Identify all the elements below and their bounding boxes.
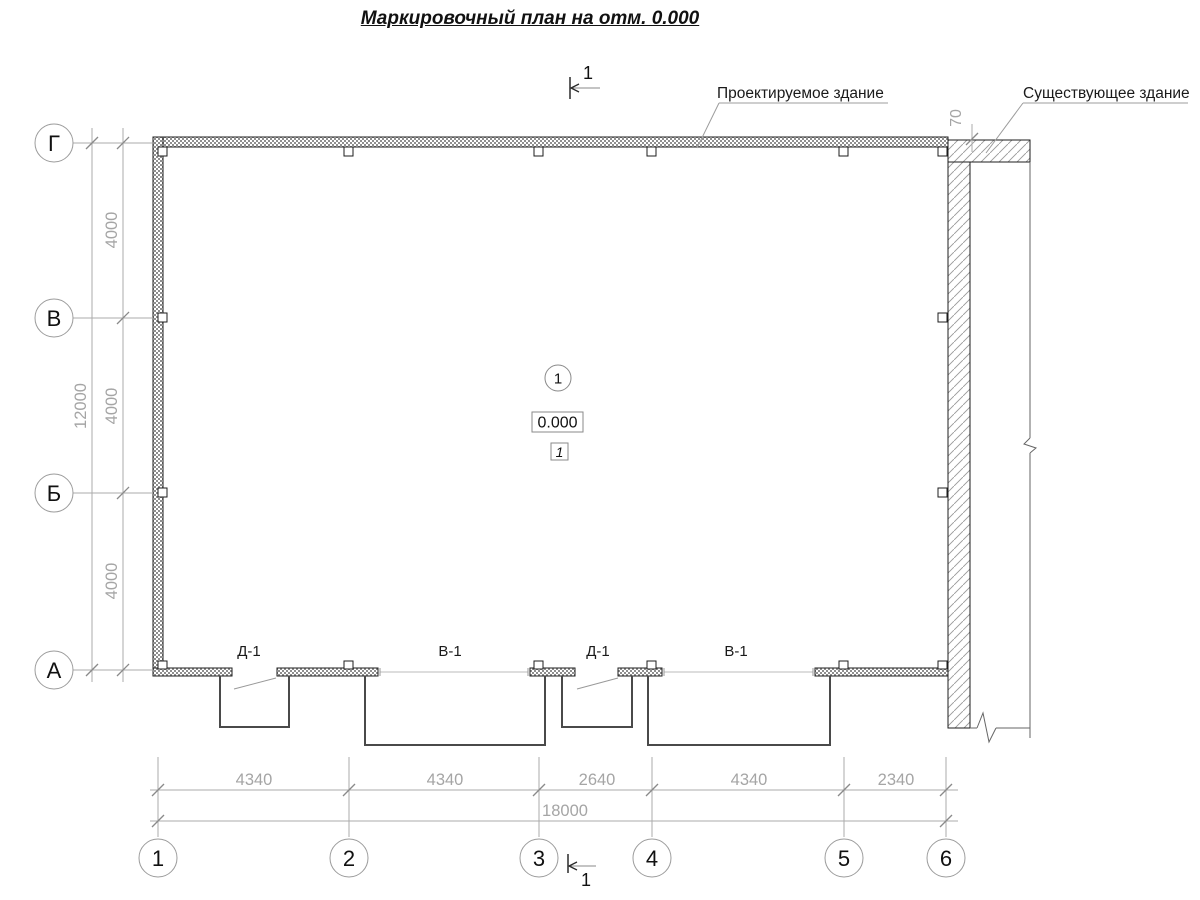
- wall: [153, 137, 163, 676]
- door-swing-line: [234, 678, 276, 689]
- wall: [277, 668, 378, 676]
- elevation-value: 0.000: [537, 415, 577, 432]
- section-mark-label-bottom: 1: [581, 870, 591, 891]
- projected-building-label: Проектируемое здание: [717, 85, 884, 103]
- pilaster: [158, 313, 167, 322]
- pilaster: [938, 661, 947, 669]
- door-mark-d1: Д-1: [227, 643, 271, 660]
- pilaster: [839, 661, 848, 669]
- window-mark-v1: В-1: [428, 643, 472, 660]
- existing-building-label: Существующее здание: [1023, 85, 1190, 103]
- pilaster: [938, 313, 947, 322]
- drawing-canvas: ГВБА123456434043402640434023401800040004…: [0, 0, 1200, 900]
- axis-number: 5: [838, 846, 850, 871]
- existing-building-wall: [948, 140, 1030, 162]
- dim-text: 2640: [579, 771, 616, 789]
- pilaster: [158, 661, 167, 669]
- dim-text: 4340: [731, 771, 768, 789]
- pilaster: [647, 147, 656, 156]
- axis-number: 4: [646, 846, 658, 871]
- room-number: 1: [554, 371, 562, 388]
- pilaster: [158, 147, 167, 156]
- pilaster: [534, 661, 543, 669]
- axis-letter: А: [47, 658, 62, 683]
- door-mark-d1-2: Д-1: [576, 643, 620, 660]
- wall: [815, 668, 948, 676]
- pilaster: [938, 488, 947, 497]
- axis-letter: Б: [47, 481, 61, 506]
- window-mark-v1-2: В-1: [714, 643, 758, 660]
- dim-text-vertical: 4000: [103, 212, 121, 249]
- dim-text-vertical: 4000: [103, 388, 121, 425]
- pilaster: [344, 661, 353, 669]
- porch-outline: [648, 676, 830, 745]
- dim-text: 4340: [236, 771, 273, 789]
- dim-text-vertical: 4000: [103, 563, 121, 600]
- break-zigzag: [977, 713, 996, 742]
- pilaster: [938, 147, 947, 156]
- dim-total-text: 18000: [542, 802, 588, 820]
- generated-geometry: ГВБА123456434043402640434023401800040004…: [35, 77, 1188, 877]
- porch-outline: [365, 676, 545, 745]
- pilaster: [158, 488, 167, 497]
- axis-letter: Г: [48, 131, 60, 156]
- pilaster: [344, 147, 353, 156]
- door-swing-line: [577, 678, 618, 689]
- axis-letter: В: [47, 306, 62, 331]
- pilaster: [647, 661, 656, 669]
- floor-type-value: 1: [556, 444, 564, 460]
- drawing-title: Маркировочный план на отм. 0.000: [335, 8, 725, 30]
- pilaster: [839, 147, 848, 156]
- dim-total-vertical: 12000: [72, 383, 90, 429]
- section-mark-label-top: 1: [583, 63, 593, 84]
- floor-plan-drawing: ГВБА123456434043402640434023401800040004…: [0, 0, 1200, 900]
- axis-number: 2: [343, 846, 355, 871]
- gap-dimension-text: 70: [948, 109, 965, 127]
- axis-number: 1: [152, 846, 164, 871]
- pilaster: [534, 147, 543, 156]
- break-zigzag: [1024, 438, 1036, 453]
- axis-number: 6: [940, 846, 952, 871]
- dim-text: 4340: [427, 771, 464, 789]
- dim-text: 2340: [878, 771, 915, 789]
- wall: [153, 137, 948, 147]
- axis-number: 3: [533, 846, 545, 871]
- existing-building-wall: [948, 140, 970, 728]
